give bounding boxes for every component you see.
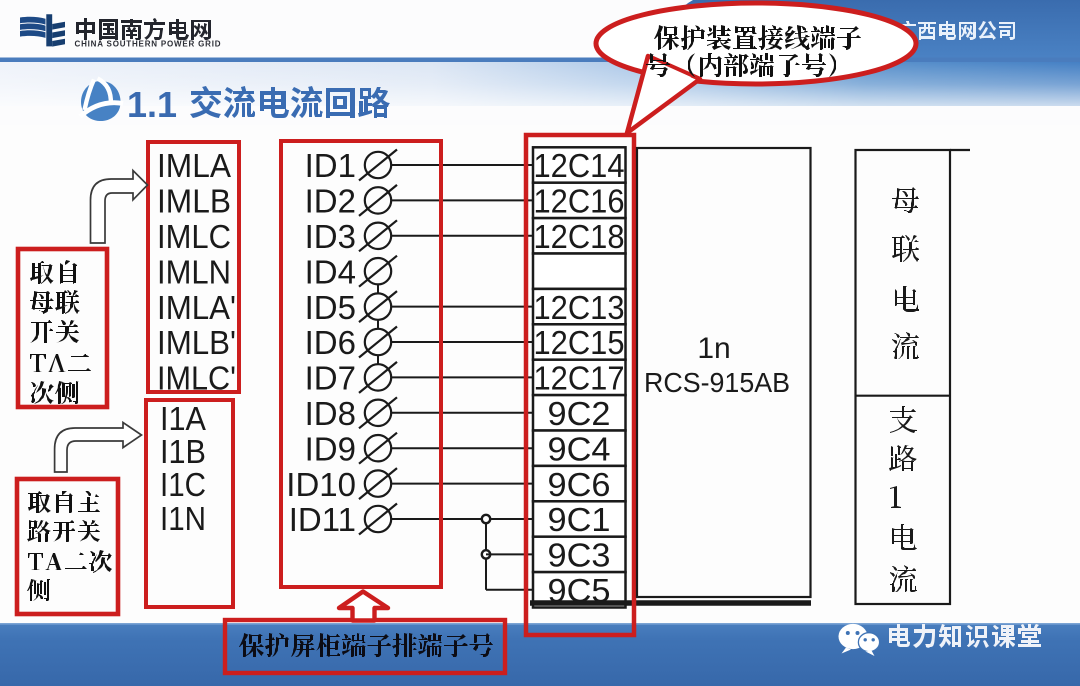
svg-text:I1N: I1N xyxy=(160,500,206,537)
svg-text:I1B: I1B xyxy=(160,433,206,470)
svg-text:12C18: 12C18 xyxy=(534,218,625,255)
svg-text:9C3: 9C3 xyxy=(548,537,611,574)
svg-text:12C16: 12C16 xyxy=(534,183,625,220)
svg-text:I1C: I1C xyxy=(160,466,206,503)
svg-text:IMLC: IMLC xyxy=(157,218,231,255)
svg-text:IMLA': IMLA' xyxy=(157,289,236,326)
svg-text:ID7: ID7 xyxy=(305,360,356,397)
svg-text:ID6: ID6 xyxy=(305,324,356,361)
svg-text:IMLA: IMLA xyxy=(157,147,231,184)
svg-text:12C15: 12C15 xyxy=(534,324,625,361)
svg-text:I1A: I1A xyxy=(160,400,206,437)
svg-text:1n: 1n xyxy=(697,332,730,365)
svg-text:1.1: 1.1 xyxy=(127,84,177,125)
svg-text:9C4: 9C4 xyxy=(548,430,611,467)
svg-text:RCS-915AB: RCS-915AB xyxy=(644,367,790,398)
svg-text:CHINA SOUTHERN POWER GRID: CHINA SOUTHERN POWER GRID xyxy=(75,40,222,49)
svg-text:ID3: ID3 xyxy=(305,218,356,255)
svg-text:ID9: ID9 xyxy=(305,430,356,467)
svg-text:IMLB': IMLB' xyxy=(157,324,236,361)
svg-text:ID10: ID10 xyxy=(286,466,356,503)
svg-text:9C1: 9C1 xyxy=(548,501,611,538)
svg-text:ID4: ID4 xyxy=(305,253,356,290)
svg-text:12C17: 12C17 xyxy=(534,360,625,397)
svg-text:ID8: ID8 xyxy=(305,395,356,432)
svg-text:ID1: ID1 xyxy=(305,147,356,184)
svg-text:9C2: 9C2 xyxy=(548,395,611,432)
svg-text:ID5: ID5 xyxy=(305,289,356,326)
svg-text:ID2: ID2 xyxy=(305,183,356,220)
svg-text:IMLB: IMLB xyxy=(157,183,231,220)
svg-text:12C13: 12C13 xyxy=(534,289,625,326)
svg-text:12C14: 12C14 xyxy=(534,147,625,184)
svg-text:9C6: 9C6 xyxy=(548,466,611,503)
svg-text:IMLN: IMLN xyxy=(157,253,231,290)
svg-text:ID11: ID11 xyxy=(289,501,356,538)
